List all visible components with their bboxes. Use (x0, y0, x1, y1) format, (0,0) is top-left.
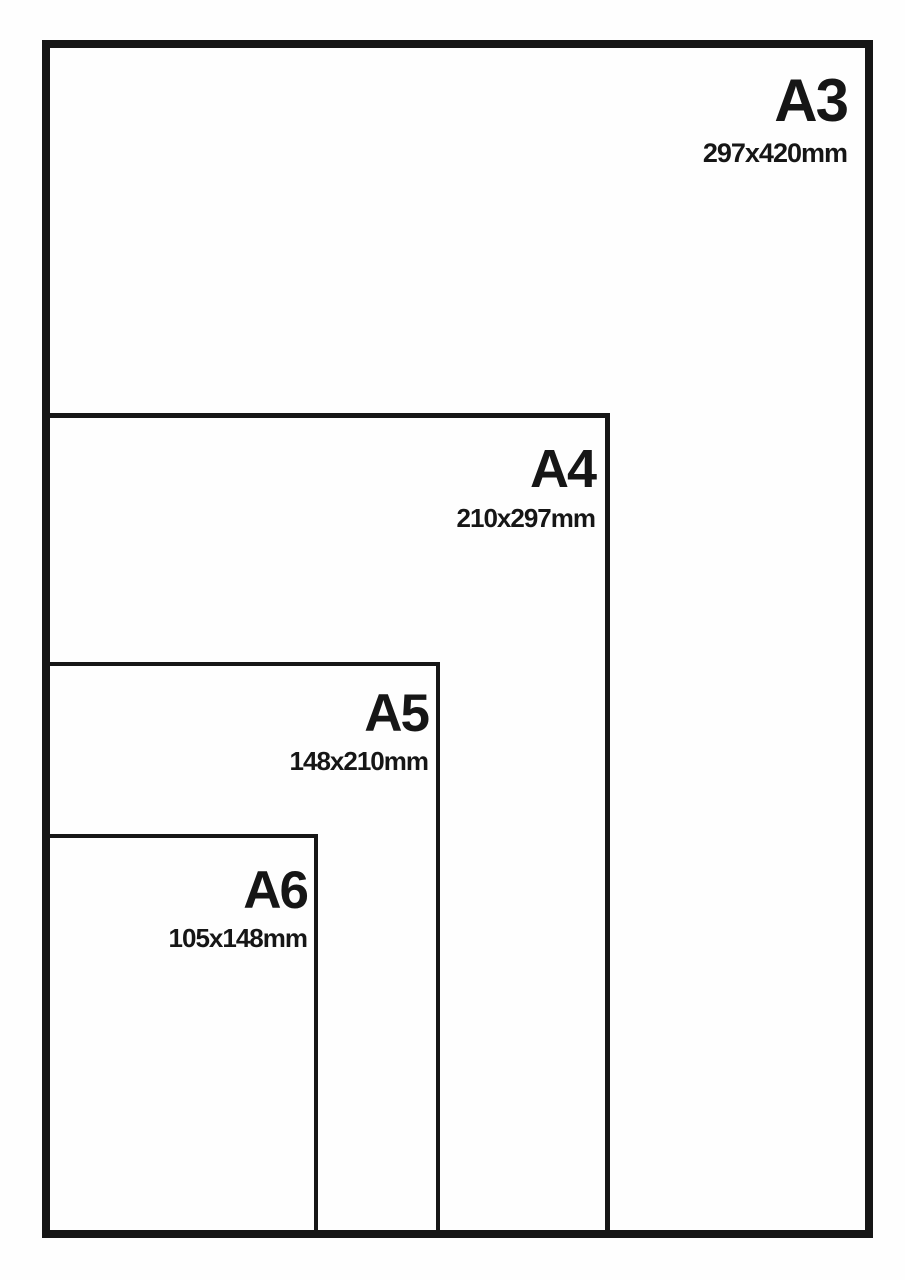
a6-size-dimensions: 105x148mm (169, 923, 307, 954)
a3-rectangle: A3 297x420mm A4 210x297mm A5 148x210mm A… (42, 40, 873, 1238)
paper-size-diagram: A3 297x420mm A4 210x297mm A5 148x210mm A… (0, 0, 905, 1280)
a6-rectangle: A6 105x148mm (50, 834, 318, 1230)
a3-size-dimensions: 297x420mm (703, 138, 847, 169)
a6-size-name: A6 (169, 866, 307, 916)
a6-label: A6 105x148mm (169, 866, 307, 954)
a3-label: A3 297x420mm (703, 72, 847, 169)
a4-label: A4 210x297mm (457, 444, 595, 534)
a5-label: A5 148x210mm (290, 689, 428, 777)
a3-size-name: A3 (703, 72, 847, 129)
a5-size-dimensions: 148x210mm (290, 746, 428, 777)
a4-size-name: A4 (457, 444, 595, 495)
a5-size-name: A5 (290, 689, 428, 739)
a4-size-dimensions: 210x297mm (457, 503, 595, 534)
